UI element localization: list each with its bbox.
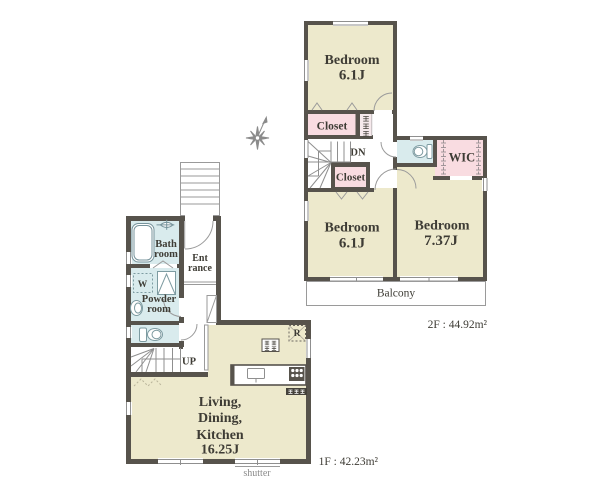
svg-text:7.37J: 7.37J <box>424 233 458 249</box>
svg-text:Closet: Closet <box>336 172 366 184</box>
svg-text:R: R <box>294 329 301 339</box>
svg-text:1F : 42.23m²: 1F : 42.23m² <box>319 456 379 468</box>
svg-text:6.1J: 6.1J <box>339 236 366 252</box>
svg-text:W: W <box>138 280 148 290</box>
svg-text:Bedroom: Bedroom <box>325 221 380 236</box>
svg-text:16.25J: 16.25J <box>201 443 240 458</box>
svg-text:room: room <box>154 249 178 260</box>
svg-text:Living,: Living, <box>199 395 241 410</box>
svg-text:Closet: Closet <box>317 121 348 133</box>
svg-text:WIC: WIC <box>449 151 475 165</box>
svg-text:Bedroom: Bedroom <box>325 53 380 68</box>
svg-text:Dining,: Dining, <box>198 411 242 426</box>
svg-text:Balcony: Balcony <box>377 288 416 300</box>
svg-text:Kitchen: Kitchen <box>196 428 244 443</box>
svg-text:shutter: shutter <box>243 468 271 479</box>
svg-text:rance: rance <box>188 263 212 274</box>
svg-text:2F : 44.92m²: 2F : 44.92m² <box>428 319 488 331</box>
svg-text:UP: UP <box>182 357 197 368</box>
svg-text:6.1J: 6.1J <box>339 68 366 84</box>
svg-text:DN: DN <box>350 148 366 159</box>
svg-text:Bedroom: Bedroom <box>415 219 470 234</box>
svg-text:room: room <box>147 304 171 315</box>
